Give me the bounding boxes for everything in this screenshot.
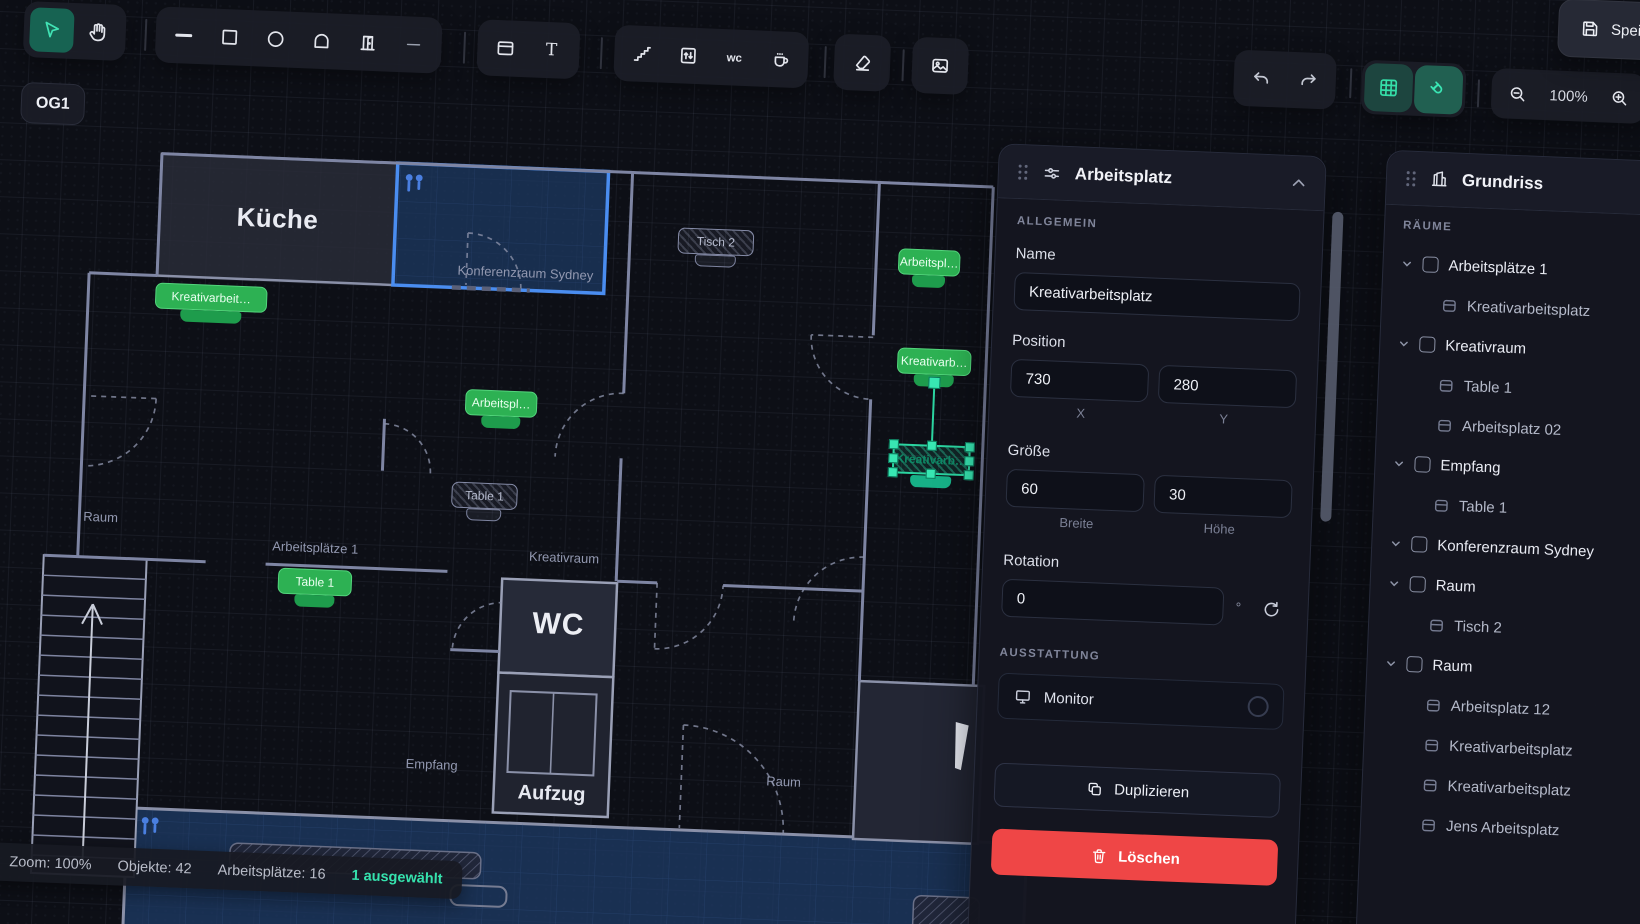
door-tool-button[interactable]	[345, 20, 391, 66]
monitor-icon	[1012, 686, 1033, 707]
y-sublabel: Y	[1152, 409, 1295, 430]
chevron-down-icon[interactable]	[1390, 538, 1401, 549]
toggle-group	[1361, 60, 1467, 118]
resize-handle-tl[interactable]	[889, 439, 899, 449]
tree-label: Kreativraum	[1445, 337, 1526, 357]
desk-label: Table 1	[465, 488, 504, 504]
tree-label: Arbeitsplatz 02	[1462, 418, 1562, 439]
toolbar-group-select	[23, 1, 127, 61]
desk-object[interactable]: Table 1	[451, 482, 518, 511]
rotation-label: Rotation	[1003, 552, 1289, 580]
elevator-tool-button[interactable]	[665, 33, 711, 79]
resize-handle-br[interactable]	[964, 470, 974, 480]
thin-wall-icon	[401, 32, 426, 57]
desk-icon	[1438, 378, 1454, 394]
zoom-in-icon	[1608, 87, 1631, 110]
tree-label: Raum	[1432, 657, 1473, 676]
desk-label: Arbeitspl…	[900, 254, 959, 270]
degree-unit: °	[1235, 599, 1241, 615]
properties-panel-title: Arbeitsplatz	[1074, 164, 1172, 188]
desk-object[interactable]: Tisch 2	[677, 227, 754, 256]
grid-icon	[1376, 75, 1401, 100]
tree-label: Empfang	[1440, 457, 1501, 476]
desk-label: Kreativarb…	[895, 451, 967, 468]
save-button[interactable]: Speichern	[1557, 0, 1640, 62]
room-tree: Arbeitsplätze 1KreativarbeitsplatzKreati…	[1378, 243, 1640, 853]
circle-tool-button[interactable]	[253, 16, 299, 62]
zoom-control-group: 100%	[1490, 68, 1640, 124]
eraser-tool-button[interactable]	[839, 40, 885, 86]
door-icon	[355, 30, 380, 55]
zoom-out-button[interactable]	[1497, 74, 1538, 114]
redo-icon	[1295, 68, 1320, 93]
wall-tool-button[interactable]	[161, 13, 207, 59]
rotate-icon[interactable]	[1259, 597, 1282, 620]
properties-panel: Arbeitsplatz ALLGEMEIN Name Position X Y…	[965, 143, 1326, 924]
layers-panel-title: Grundriss	[1462, 170, 1544, 193]
tree-label: Table 1	[1463, 378, 1512, 397]
resize-handle-tr[interactable]	[965, 442, 975, 452]
room-checkbox[interactable]	[1419, 336, 1436, 353]
app-viewport: KücheKonferenzraum SydneyRaumArbeitsplät…	[0, 0, 1640, 924]
chevron-down-icon[interactable]	[1388, 578, 1399, 589]
arch-tool-button[interactable]	[299, 18, 345, 64]
snap-toggle-button[interactable]	[1414, 65, 1464, 115]
desk-label: Kreativarb…	[901, 353, 968, 370]
coffee-tool-button[interactable]	[757, 36, 803, 82]
width-input[interactable]	[1005, 469, 1144, 513]
desk-icon	[1421, 817, 1437, 833]
chevron-down-icon[interactable]	[1393, 458, 1404, 469]
wc-tool-button[interactable]: wc	[711, 35, 757, 81]
room-checkbox[interactable]	[1414, 456, 1431, 473]
chevron-down-icon[interactable]	[1385, 658, 1396, 669]
room-checkbox[interactable]	[1406, 656, 1423, 673]
stairs-tool-button[interactable]	[619, 31, 665, 77]
desk-label: Kreativarbeit…	[171, 289, 251, 306]
desk-label: Arbeitspl…	[472, 395, 531, 411]
chevron-down-icon[interactable]	[1401, 258, 1412, 269]
scene: KücheKonferenzraum SydneyRaumArbeitsplät…	[0, 0, 1639, 924]
wall-line-icon	[171, 23, 196, 48]
desk-chair	[294, 594, 334, 608]
resize-handle-ml[interactable]	[888, 453, 898, 463]
status-zoom: Zoom: 100%	[9, 854, 92, 873]
room-checkbox[interactable]	[1411, 536, 1428, 553]
status-workspaces: Arbeitsplätze: 16	[217, 862, 326, 882]
rotation-handle[interactable]	[931, 385, 935, 447]
desk-chair	[912, 275, 945, 288]
resize-handle-bl[interactable]	[888, 467, 898, 477]
text-tool-button[interactable]: T	[529, 27, 575, 73]
desk-object[interactable]: Arbeitspl…	[465, 389, 538, 418]
name-input[interactable]	[1013, 272, 1300, 321]
monitor-label: Monitor	[1044, 689, 1095, 708]
drag-handle-icon[interactable]	[1405, 169, 1418, 187]
tree-label: Kreativarbeitsplatz	[1447, 777, 1571, 799]
redo-button[interactable]	[1285, 58, 1331, 104]
eraser-icon	[850, 50, 875, 75]
name-label: Name	[1015, 245, 1301, 273]
tree-label: Raum	[1435, 577, 1476, 596]
undo-icon	[1249, 66, 1274, 91]
desk-chair	[180, 309, 241, 323]
circle-icon	[263, 27, 288, 52]
zoom-level: 100%	[1539, 86, 1598, 105]
elevator-icon	[676, 43, 701, 68]
tree-label: Konferenzraum Sydney	[1437, 537, 1594, 560]
section-allgemein: ALLGEMEIN	[1017, 215, 1303, 238]
toolbar-group-image	[911, 37, 969, 95]
floor-badge[interactable]: OG1	[20, 82, 86, 126]
resize-handle-mr[interactable]	[964, 456, 974, 466]
position-label: Position	[1012, 332, 1298, 360]
undo-button[interactable]	[1239, 56, 1285, 102]
x-sublabel: X	[1009, 403, 1152, 424]
rotation-input[interactable]	[1001, 579, 1224, 626]
stairs-icon	[630, 41, 655, 66]
rotation-knob[interactable]	[928, 377, 940, 389]
desk-icon	[1442, 298, 1458, 314]
toolbar-group-content: T	[476, 19, 580, 79]
toolbar-group-shapes	[155, 6, 443, 73]
copy-icon	[1085, 779, 1105, 799]
toolbar-group-eraser	[833, 34, 891, 92]
image-tool-button[interactable]	[917, 43, 963, 89]
trash-icon	[1089, 846, 1109, 866]
tree-label: Jens Arbeitsplatz	[1446, 817, 1560, 839]
room-checkbox[interactable]	[1422, 256, 1439, 273]
desk-object[interactable]: Table 1	[277, 568, 352, 597]
size-label: Größe	[1007, 442, 1293, 470]
desk-chair	[695, 254, 736, 268]
resize-handle-tm[interactable]	[927, 441, 937, 451]
tree-label: Arbeitsplätze 1	[1448, 257, 1548, 278]
rectangle-tool-button[interactable]	[207, 14, 253, 60]
desk-chair	[481, 416, 520, 430]
desk-label: Table 1	[295, 574, 334, 590]
undo-redo-group	[1233, 50, 1337, 110]
toolbar-group-fixtures: wc	[613, 25, 809, 89]
desk-chair	[466, 508, 502, 521]
desk-icon	[1429, 617, 1445, 633]
zoom-in-button[interactable]	[1599, 78, 1640, 118]
text-icon: T	[539, 38, 564, 63]
desk-icon	[1422, 777, 1438, 793]
status-selected: 1 ausgewählt	[351, 868, 443, 888]
breite-sublabel: Breite	[1005, 513, 1148, 534]
cursor-tool-button[interactable]	[29, 7, 75, 53]
image-icon	[928, 53, 953, 78]
layers-panel: Grundriss RÄUME Arbeitsplätze 1Kreativar…	[1351, 150, 1640, 924]
hand-tool-button[interactable]	[75, 9, 121, 55]
status-objects: Objekte: 42	[117, 858, 192, 877]
tree-label: Kreativarbeitsplatz	[1467, 298, 1591, 320]
section-ausstattung: AUSSTATTUNG	[999, 647, 1285, 670]
cursor-icon	[39, 18, 64, 43]
section-raeume: RÄUME	[1403, 219, 1640, 242]
rectangle-icon	[217, 25, 242, 50]
height-input[interactable]	[1153, 475, 1292, 519]
desk-object[interactable]: Kreativarbeit…	[155, 282, 268, 312]
desk-icon	[1434, 497, 1450, 513]
desk-icon	[1424, 737, 1440, 753]
thin-wall-tool-button[interactable]	[391, 22, 437, 68]
save-icon	[1579, 17, 1602, 40]
desk-label: Tisch 2	[696, 234, 735, 250]
monitor-row[interactable]: Monitor	[997, 673, 1285, 730]
position-y-input[interactable]	[1158, 365, 1297, 409]
hoehe-sublabel: Höhe	[1148, 518, 1291, 539]
desk-icon	[493, 36, 518, 61]
resize-handle-bm[interactable]	[926, 469, 936, 479]
zoom-out-icon	[1506, 83, 1529, 106]
desk-icon	[1426, 697, 1442, 713]
desk-object[interactable]: Arbeitspl…	[898, 248, 961, 276]
drag-handle-icon[interactable]	[1017, 162, 1030, 180]
position-x-input[interactable]	[1010, 359, 1149, 403]
desk-tool-button[interactable]	[483, 25, 529, 71]
room-checkbox[interactable]	[1409, 576, 1426, 593]
collapse-chevron-icon[interactable]	[1290, 174, 1307, 191]
delete-button[interactable]: Löschen	[991, 829, 1279, 886]
tree-label: Kreativarbeitsplatz	[1449, 737, 1573, 759]
wc-icon: wc	[722, 45, 747, 70]
tree-label: Tisch 2	[1454, 617, 1502, 636]
desk-object-selected[interactable]: Kreativarb…	[892, 443, 971, 476]
building-icon	[1429, 168, 1451, 190]
coffee-icon	[768, 47, 793, 72]
svg-text:wc: wc	[725, 52, 742, 65]
monitor-toggle[interactable]	[1247, 695, 1269, 717]
tree-label: Arbeitsplatz 12	[1451, 697, 1551, 718]
sliders-icon	[1040, 161, 1063, 184]
grid-toggle-button[interactable]	[1364, 63, 1414, 113]
duplicate-button[interactable]: Duplizieren	[993, 763, 1281, 818]
desk-object[interactable]: Kreativarb…	[897, 347, 972, 376]
tree-label: Table 1	[1459, 497, 1508, 516]
magnet-icon	[1426, 77, 1451, 102]
arch-icon	[309, 28, 334, 53]
chevron-down-icon[interactable]	[1398, 338, 1409, 349]
desk-icon	[1437, 418, 1453, 434]
hand-icon	[85, 19, 110, 44]
svg-text:T: T	[545, 40, 558, 60]
